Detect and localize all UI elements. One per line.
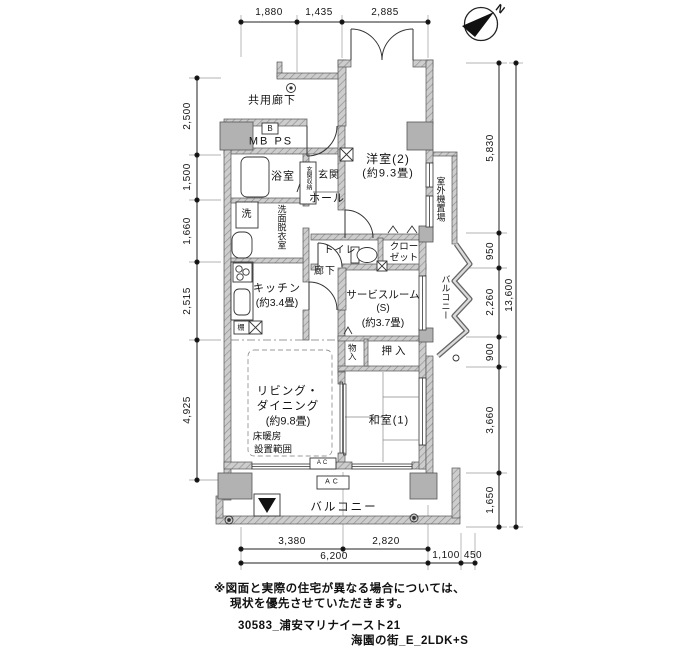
- label-mb-ps: MB PS: [249, 137, 293, 148]
- compass-icon: [462, 8, 498, 41]
- label-floor-heating-1: 床暖房: [253, 432, 282, 442]
- label-balcony-side: バルコニー: [441, 275, 450, 320]
- label-western-room2-size: (約9.3畳): [362, 169, 414, 180]
- floor-plan: 1,880 1,435 2,885 2,500 1,500 1,660 2,51…: [0, 0, 700, 650]
- label-living-1: リビング・: [257, 386, 320, 398]
- dim-right-4: 900: [486, 343, 496, 361]
- dim-top-3: 2,885: [371, 8, 399, 18]
- label-oshiire: 押入: [382, 346, 409, 357]
- label-western-room2: 洋室(2): [366, 153, 410, 165]
- label-common-corridor: 共用廊下: [248, 96, 296, 107]
- dim-bottom-4: 1,100: [432, 551, 460, 561]
- note-line-4: 海園の街_E_2LDK+S: [351, 634, 468, 648]
- label-toilet: トイレ: [324, 246, 357, 256]
- dim-bottom-2: 2,820: [372, 537, 400, 547]
- dim-left-1: 2,500: [183, 102, 193, 130]
- label-outdoor-unit: 室外機置場: [436, 177, 445, 222]
- dim-top-2: 1,435: [305, 8, 333, 18]
- label-service-room-size: (約3.7畳): [362, 318, 405, 329]
- dim-top-1: 1,880: [255, 8, 283, 18]
- fusuma-door: [344, 384, 347, 455]
- label-living-2: ダイニング: [257, 401, 320, 413]
- dim-bottom-5: 450: [464, 551, 482, 561]
- label-ac-balcony: AC: [325, 479, 341, 486]
- sink-icon: [234, 289, 250, 315]
- kitchen-door-arc: [309, 282, 337, 310]
- dim-right-2: 950: [486, 242, 496, 260]
- label-closet-1: クロー: [390, 242, 419, 252]
- label-kitchen-size: (約3.4畳): [256, 298, 299, 309]
- toilet-icon: [357, 248, 377, 263]
- label-washer: 洗: [242, 210, 253, 220]
- note-line-1: ※図面と実際の住宅が異なる場合については、: [214, 582, 465, 596]
- label-corridor: 廊下: [314, 267, 336, 277]
- washbasin-icon: [232, 232, 252, 258]
- dim-bottom-3: 6,200: [320, 552, 348, 562]
- label-shelf: 棚: [238, 325, 245, 332]
- dim-left-3: 1,660: [183, 217, 193, 245]
- label-meter-b: B: [267, 125, 272, 133]
- label-living-size: (約9.8畳): [266, 417, 311, 428]
- label-mono-ire: 物入: [348, 344, 357, 361]
- label-entrance-storage: 玄関収納: [305, 166, 311, 190]
- label-japanese-room: 和室(1): [369, 416, 409, 427]
- hanger-icon: [407, 226, 417, 233]
- label-service-room-s: (S): [376, 304, 389, 314]
- dim-right-1: 5,830: [486, 134, 496, 162]
- note-line-3: 30583_浦安マリナイースト21: [238, 619, 401, 633]
- drain-icon: [453, 355, 459, 361]
- dim-right-3: 2,260: [486, 288, 496, 316]
- hanger-icon: [388, 226, 398, 233]
- label-hall: ホール: [309, 194, 345, 205]
- dim-bottom-1: 3,380: [278, 537, 306, 547]
- fusuma-door: [340, 382, 343, 453]
- label-service-room: サービスルーム: [346, 290, 419, 301]
- dim-left-4: 2,515: [183, 287, 193, 315]
- dim-left-2: 1,500: [183, 163, 193, 191]
- label-closet-2: ゼット: [390, 253, 419, 263]
- label-balcony-bottom: バルコニー: [310, 502, 377, 514]
- floor-plan-drawing: [0, 0, 700, 650]
- label-entrance: 玄関: [318, 171, 340, 181]
- label-floor-heating-2: 設置範囲: [254, 445, 292, 455]
- dim-right-6: 1,650: [486, 486, 496, 514]
- label-ac-indoor: AC: [317, 460, 329, 466]
- label-bathroom: 浴室: [271, 172, 295, 183]
- dim-right-5: 3,660: [486, 406, 496, 434]
- dim-left-5: 4,925: [183, 396, 193, 424]
- dim-right-total: 13,600: [505, 278, 515, 312]
- label-kitchen: キッチン: [253, 284, 301, 295]
- note-line-2: 現状を優先させていただきます。: [230, 597, 409, 611]
- accordion-door: [338, 268, 346, 310]
- bathtub-icon: [241, 157, 269, 197]
- label-washroom: 洗面脱衣室: [277, 205, 286, 250]
